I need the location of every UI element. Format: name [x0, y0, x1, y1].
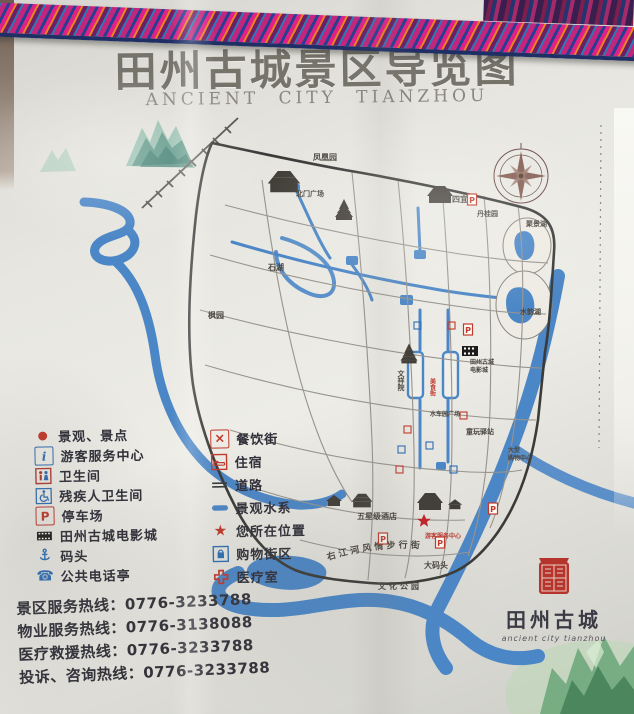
legend-item-scenic-spot: 景观、景点: [34, 424, 204, 446]
legend-item-lodging: 住宿: [210, 448, 350, 472]
mountains-bottom-right: [505, 636, 634, 714]
legend-item-visitor-center: i 游客服务中心: [34, 444, 204, 466]
legend-item-dock: 码头: [36, 544, 206, 566]
restroom-icon: [35, 467, 52, 484]
legend-item-cinema: 田州古城电影城: [36, 524, 206, 546]
legend-item-medical: 医疗室: [212, 563, 352, 587]
parking-marker: P: [379, 533, 388, 544]
map-label: 聚景湖: [525, 219, 547, 228]
map-label: 北门广场: [296, 189, 324, 198]
map-label: 水韵湖: [520, 307, 541, 316]
medical-cross-icon: [213, 568, 230, 585]
map-label: 田州古城: [470, 358, 494, 366]
legend-item-shopping: 购物街区: [212, 540, 352, 564]
parking-marker: P: [464, 324, 473, 335]
map-billboard-photo: 右江河风情步行街 凤凰园北门广场四宜园丹桂园石湖枫园聚景湖水韵湖文祥院田州古城电…: [0, 0, 634, 714]
svg-text:P: P: [380, 535, 386, 544]
map-label: 电影城: [470, 366, 488, 374]
map-border-dotted: [599, 125, 601, 448]
brand-name: 田州古城: [494, 604, 614, 633]
legend-item-you-are-here: ★ 您所在位置: [212, 517, 352, 541]
red-seal-stamp: [535, 556, 573, 598]
bed-icon: [211, 453, 228, 470]
info-icon: i: [34, 446, 53, 465]
mountains-top-left: [40, 120, 195, 172]
adjacent-wall-strip: [614, 108, 634, 538]
map-label: 大型: [508, 446, 520, 454]
map-label: 美食街: [429, 377, 437, 397]
map-label: 五星级酒店: [357, 511, 397, 521]
brand-name-english: ancient city tianzhou: [494, 634, 614, 643]
brand-seal-block: 田州古城 ancient city tianzhou: [494, 556, 614, 643]
water-icon: [211, 499, 228, 516]
parking-marker: P: [468, 194, 477, 205]
map-label: 水车园广场: [430, 410, 460, 418]
map-label: 大码头: [424, 560, 448, 570]
compass-rose: [494, 143, 548, 203]
map-label: 丹桂园: [476, 209, 498, 218]
map-label: 凤凰园: [313, 153, 337, 162]
map-label: 枫园: [208, 310, 224, 320]
svg-text:P: P: [490, 505, 496, 514]
legend-item-dining: × 餐饮街: [210, 425, 350, 449]
map-label: 石湖: [267, 262, 284, 272]
parking-icon: P: [35, 506, 54, 525]
svg-text:P: P: [465, 326, 471, 335]
hotline-list: 景区服务热线：0776-3233788 物业服务热线：0776-3138088 …: [16, 587, 271, 689]
shopping-bag-icon: [212, 545, 229, 562]
legend-item-parking: P 停车场: [35, 504, 205, 526]
dining-icon: ×: [210, 429, 229, 448]
legend-item-road: 道路: [211, 471, 351, 495]
scenic-spot-icon: [34, 427, 51, 444]
anchor-icon: [36, 547, 53, 564]
map-label: 文化公园: [378, 581, 422, 591]
map-label: 文祥院: [397, 369, 406, 392]
map-label: 购物中心: [508, 454, 532, 462]
phone-icon: ☎: [36, 567, 53, 584]
legend-item-accessible-restroom: 残疾人卫生间: [35, 484, 205, 506]
map-label: 童玩驿站: [466, 427, 494, 436]
svg-text:P: P: [437, 539, 443, 548]
road-icon: [211, 476, 228, 493]
legend-item-phone: ☎ 公共电话亭: [36, 564, 206, 586]
wheelchair-icon: [35, 487, 52, 504]
legend-item-water: 景观水系: [211, 494, 351, 518]
star-icon: ★: [212, 522, 229, 539]
you-are-here-star: [417, 514, 430, 527]
filmstrip-icon: [36, 527, 53, 544]
parking-marker: P: [436, 537, 445, 548]
parking-marker: P: [489, 503, 498, 514]
svg-text:P: P: [469, 196, 475, 205]
legend-item-restroom: 卫生间: [35, 464, 205, 486]
